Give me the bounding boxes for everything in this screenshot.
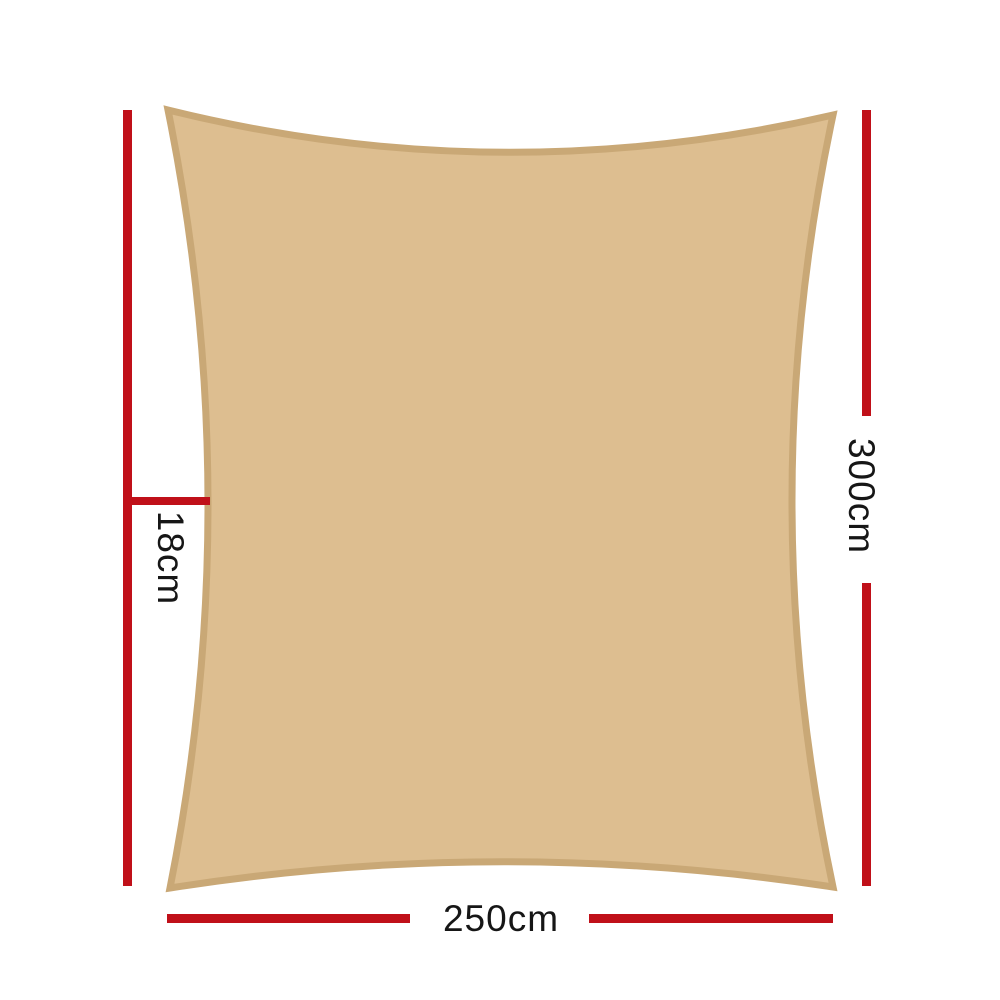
bottom-dimension-line-left (167, 914, 410, 923)
right-dimension-line-lower (862, 583, 871, 886)
curve-depth-tick (123, 497, 210, 505)
side-height-label: 300cm (840, 438, 882, 554)
product-dimension-diagram: 18cm 300cm 250cm (0, 0, 1000, 1000)
bottom-width-label: 250cm (443, 898, 559, 940)
right-dimension-line-upper (862, 110, 871, 416)
curve-depth-label: 18cm (149, 511, 191, 605)
bottom-dimension-line-right (589, 914, 833, 923)
shade-sail-shape (168, 110, 833, 888)
